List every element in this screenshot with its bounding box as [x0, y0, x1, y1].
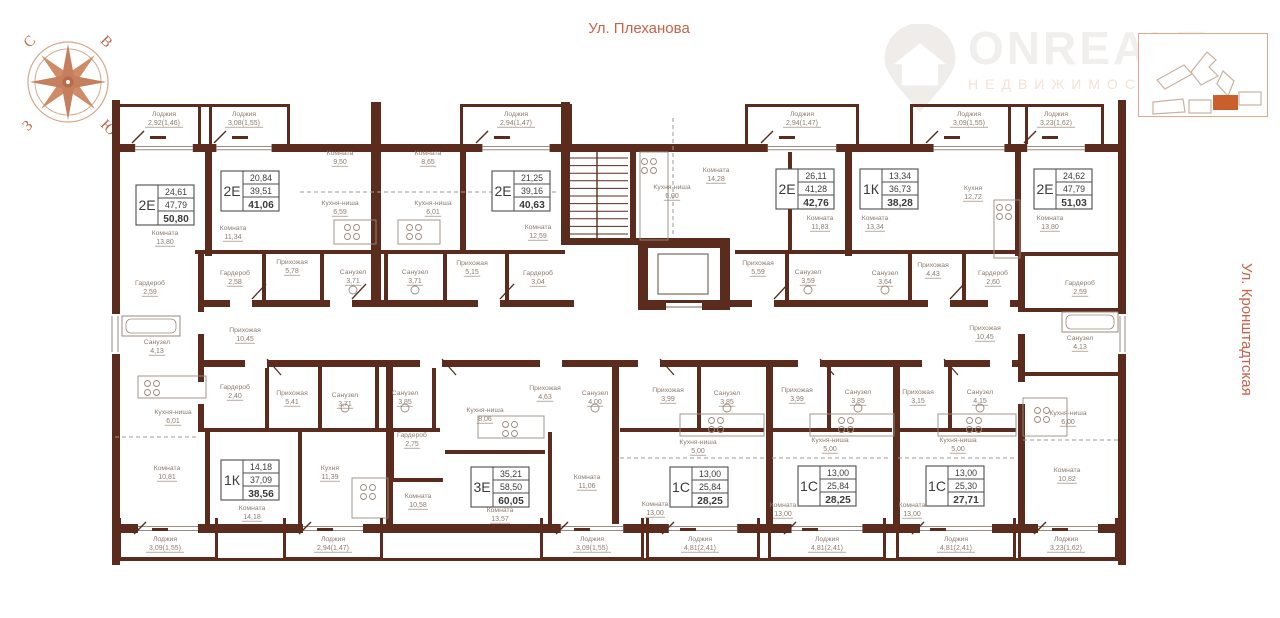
room-area: 3,71 — [346, 278, 360, 285]
room-name: Комната — [220, 225, 247, 232]
room-label: Санузел3,71 — [402, 269, 429, 285]
room-label: Лоджия4,81(2,41) — [681, 536, 719, 552]
room-label: Гардероб2,58 — [220, 269, 250, 286]
room-name: Санузел — [582, 390, 609, 397]
room-label: Лоджия3,09(1,55) — [573, 536, 611, 552]
room-area: 10,45 — [236, 336, 254, 343]
apartment-area: 36,73 — [889, 184, 911, 194]
floorplan-svg: Комната9,50Комната8,65Комната14,28Кухня-… — [0, 0, 1280, 618]
room-name: Комната — [899, 502, 926, 509]
apartment-type: 1К — [224, 472, 241, 488]
room-label: Санузел3,85 — [845, 389, 872, 405]
room-label: Прихожая3,99 — [652, 387, 684, 403]
room-name: Прихожая — [969, 325, 1001, 332]
room-label: Гардероб2,59 — [1065, 279, 1095, 296]
room-label: Прихожая5,78 — [276, 259, 308, 275]
room-label: Прихожая4,63 — [529, 385, 561, 401]
apartment-type: 1К — [863, 181, 880, 197]
room-name: Кухня-ниша — [939, 437, 976, 444]
apartment-info-box: 2Е20,8439,5141,06 — [221, 171, 279, 211]
room-label: Кухня-ниша8,06 — [466, 407, 503, 423]
apartment-area: 25,30 — [955, 481, 977, 491]
room-area: 8,06 — [478, 416, 492, 423]
room-name: Санузел — [845, 389, 872, 396]
room-label: Санузел3,59 — [795, 269, 822, 285]
room-label: Прихожая4,43 — [917, 262, 949, 278]
room-name: Комната — [1037, 215, 1064, 222]
room-area: 3,99 — [661, 396, 675, 403]
room-name: Прихожая — [229, 327, 261, 334]
apartment-area: 37,09 — [250, 475, 272, 485]
apartment-living-area: 21,25 — [521, 173, 543, 183]
apartment-info-box: 2Е24,6247,7951,03 — [1034, 169, 1092, 209]
room-name: Кухня-ниша — [653, 184, 690, 191]
room-area: 10,81 — [158, 474, 176, 481]
room-area: 3,85 — [720, 399, 734, 406]
room-name: Кухня-ниша — [154, 409, 191, 416]
room-area: 4,63 — [538, 394, 552, 401]
apartment-living-area: 20,84 — [250, 173, 272, 183]
room-area: 2,75 — [405, 441, 419, 448]
room-area: 5,00 — [823, 446, 837, 453]
room-name: Комната — [1054, 467, 1081, 474]
apartment-living-area: 24,61 — [165, 187, 187, 197]
apartment-info-box: 1К14,1837,0938,56 — [221, 460, 279, 500]
room-name: Санузел — [340, 269, 367, 276]
room-area: 3,85 — [851, 398, 865, 405]
room-name: Комната — [415, 150, 442, 157]
room-name: Прихожая — [652, 387, 684, 394]
room-label: Санузел3,64 — [872, 270, 899, 286]
room-name: Комната — [487, 507, 514, 514]
room-name: Лоджия — [1054, 536, 1078, 543]
room-label: Комната8,65 — [415, 150, 442, 166]
room-label: Комната13,00 — [899, 502, 926, 518]
apartment-living-area: 26,11 — [805, 171, 826, 181]
room-name: Прихожая — [276, 390, 308, 397]
room-name: Кухня-ниша — [321, 200, 358, 207]
room-label: Комната10,82 — [1054, 467, 1081, 483]
apartment-area: 47,79 — [1063, 184, 1085, 194]
room-name: Комната — [770, 502, 797, 509]
room-label: Санузел4,13 — [144, 339, 171, 355]
room-area: 10,82 — [1058, 476, 1076, 483]
apartment-type: 2Е — [1036, 181, 1053, 197]
room-area: 4,13 — [150, 348, 164, 355]
room-area: 3,71 — [408, 278, 422, 285]
room-label: Прихожая10,45 — [229, 327, 261, 343]
room-name: Комната — [405, 493, 432, 500]
room-area: 6,01 — [166, 418, 180, 425]
room-area: 3,04 — [531, 279, 545, 286]
stairs — [566, 152, 628, 238]
room-name: Прихожая — [917, 262, 949, 269]
apartment-area: 25,84 — [699, 482, 721, 492]
room-area: 4,15 — [973, 398, 987, 405]
room-name: Комната — [154, 465, 181, 472]
room-label: Лоджия3,09(1,55) — [146, 536, 184, 552]
room-label: Прихожая3,99 — [781, 387, 813, 403]
room-name: Лоджия — [815, 536, 839, 543]
apartment-living-area: 13,00 — [827, 468, 849, 478]
room-label: Кухня-ниша5,00 — [811, 437, 848, 453]
apartment-type: 2Е — [494, 183, 511, 199]
room-name: Комната — [152, 230, 179, 237]
room-area: 2,92(1,46) — [148, 120, 180, 127]
room-name: Прихожая — [456, 260, 488, 267]
room-label: Санузел3,85 — [392, 390, 419, 406]
room-label: Гардероб2,59 — [135, 279, 165, 296]
room-name: Комната — [239, 505, 266, 512]
room-label: Кухня12,72 — [963, 185, 983, 201]
room-label: Санузел3,71 — [332, 392, 359, 408]
room-label: Комната11,34 — [220, 225, 247, 241]
room-label: Лоджия4,81(2,41) — [808, 536, 846, 552]
apartment-type: 3Е — [473, 479, 490, 495]
room-area: 2,94(1,47) — [317, 545, 349, 552]
room-name: Комната — [574, 474, 601, 481]
room-area: 11,34 — [225, 234, 242, 241]
room-area: 2,60 — [986, 279, 1000, 286]
room-label: Лоджия2,94(1,47) — [497, 111, 535, 127]
room-label: Лоджия3,09(1,55) — [950, 111, 988, 127]
floorplan-page: ONREALT НЕДВИЖИМОСТЬ С В З Ю Ул. Плехан — [0, 0, 1280, 618]
room-area: 10,45 — [976, 334, 994, 341]
room-name: Прихожая — [902, 389, 934, 396]
room-label: Санузел4,15 — [967, 389, 994, 405]
room-label: Гардероб2,40 — [220, 383, 250, 400]
room-name: Комната — [525, 224, 552, 231]
room-name: Лоджия — [321, 536, 345, 543]
room-label: Кухня-ниша6,01 — [154, 409, 191, 425]
room-name: Лоджия — [232, 111, 256, 118]
room-area: 5,59 — [751, 269, 765, 276]
room-area: 4,81(2,41) — [684, 545, 716, 552]
room-name: Комната — [642, 501, 669, 508]
apartment-info-box: 1С13,0025,3027,71 — [926, 466, 984, 506]
apartment-info-box: 2Е26,1141,2842,76 — [776, 169, 834, 209]
apartment-type: 2Е — [223, 183, 240, 199]
room-label: Лоджия3,08(1,55) — [225, 111, 263, 127]
room-label: Лоджия2,94(1,47) — [314, 536, 352, 552]
room-area: 10,58 — [409, 502, 427, 509]
apartment-type: 2Е — [138, 197, 155, 213]
room-name: Прихожая — [781, 387, 813, 394]
room-area: 13,00 — [774, 511, 792, 518]
room-label: Кухня-ниша6,59 — [321, 200, 358, 216]
room-area: 5,00 — [951, 446, 965, 453]
room-name: Лоджия — [504, 111, 528, 118]
room-name: Гардероб — [220, 383, 250, 391]
room-label: Санузел3,85 — [714, 390, 741, 406]
room-label: Комната12,59 — [525, 224, 552, 240]
apartment-total-area: 28,25 — [697, 496, 723, 507]
room-area: 6,59 — [333, 209, 347, 216]
room-name: Лоджия — [957, 111, 981, 118]
room-area: 3,59 — [801, 278, 815, 285]
room-area: 4,81(2,41) — [811, 545, 843, 552]
apartment-area: 39,16 — [521, 186, 543, 196]
room-label: Лоджия3,23(1,62) — [1047, 536, 1085, 552]
room-area: 13,00 — [646, 510, 664, 517]
apartment-living-area: 13,00 — [955, 468, 977, 478]
room-name: Лоджия — [944, 536, 968, 543]
room-label: Санузел3,71 — [340, 269, 367, 285]
room-name: Кухня-ниша — [679, 439, 716, 446]
room-label: Комната10,81 — [154, 465, 181, 481]
apartment-info-box: 1С13,0025,8428,25 — [798, 466, 856, 506]
room-label: Комната13,80 — [152, 230, 179, 246]
apartment-total-area: 27,71 — [953, 495, 979, 506]
room-area: 2,40 — [228, 393, 242, 400]
room-area: 13,34 — [866, 224, 884, 231]
room-name: Кухня-ниша — [811, 437, 848, 444]
apartment-living-area: 35,21 — [500, 469, 522, 479]
room-label: Комната13,00 — [642, 501, 669, 517]
room-area: 11,83 — [812, 224, 829, 231]
room-name: Санузел — [144, 339, 171, 346]
room-name: Комната — [703, 167, 730, 174]
apartment-info-box: 1К13,3436,7338,28 — [860, 169, 918, 209]
apartment-area: 41,28 — [805, 184, 827, 194]
apartment-area: 25,84 — [827, 481, 849, 491]
apartment-total-area: 42,76 — [803, 198, 829, 209]
room-area: 2,94(1,47) — [786, 120, 818, 127]
room-label: Комната13,34 — [862, 215, 889, 231]
room-area: 13,80 — [156, 239, 174, 246]
room-name: Комната — [327, 150, 354, 157]
room-label: Комната10,58 — [405, 493, 432, 509]
apartment-total-area: 60,05 — [498, 496, 524, 507]
room-label: Лоджия2,94(1,47) — [783, 111, 821, 127]
room-name: Гардероб — [978, 269, 1008, 277]
room-area: 4,13 — [1073, 344, 1087, 351]
room-name: Комната — [862, 215, 889, 222]
room-label: Санузел4,00 — [582, 390, 609, 406]
room-name: Санузел — [402, 269, 429, 276]
room-name: Санузел — [332, 392, 359, 399]
room-label: Кухня11,39 — [320, 465, 340, 481]
room-name: Санузел — [392, 390, 419, 397]
apartment-living-area: 14,18 — [250, 462, 272, 472]
room-label: Прихожая5,41 — [276, 390, 308, 406]
room-name: Санузел — [967, 389, 994, 396]
room-area: 12,72 — [964, 194, 982, 201]
room-name: Прихожая — [742, 260, 774, 267]
room-name: Кухня-ниша — [466, 407, 503, 414]
room-name: Кухня-ниша — [1049, 410, 1086, 417]
room-area: 3,85 — [398, 399, 412, 406]
apartment-info-box: 1С13,0025,8428,25 — [670, 467, 728, 507]
room-label: Кухня-ниша6,00 — [1049, 410, 1086, 426]
room-label: Лоджия3,23(1,62) — [1037, 111, 1075, 127]
room-name: Санузел — [795, 269, 822, 276]
room-name: Кухня — [321, 465, 340, 472]
room-label: Комната11,06 — [574, 474, 601, 490]
apartment-type: 2Е — [778, 181, 795, 197]
room-name: Лоджия — [153, 536, 177, 543]
room-area: 5,15 — [465, 269, 479, 276]
room-area: 3,09(1,55) — [576, 545, 608, 552]
room-area: 2,59 — [1073, 289, 1087, 296]
room-area: 6,01 — [426, 209, 440, 216]
apartment-total-area: 28,25 — [825, 495, 851, 506]
room-name: Лоджия — [580, 536, 604, 543]
room-label: Комната13,00 — [770, 502, 797, 518]
room-name: Санузел — [1067, 335, 1094, 342]
room-label: Прихожая10,45 — [969, 325, 1001, 341]
room-area: 3,23(1,62) — [1050, 545, 1082, 552]
apartment-total-area: 38,28 — [887, 198, 913, 209]
room-area: 2,94(1,47) — [500, 120, 532, 127]
apartment-type: 1С — [672, 479, 690, 495]
room-area: 14,18 — [243, 514, 261, 521]
room-area: 3,15 — [911, 398, 925, 405]
room-label: Прихожая3,15 — [902, 389, 934, 405]
room-area: 13,80 — [1041, 224, 1059, 231]
room-label: Комната11,83 — [807, 215, 834, 231]
room-label: Гардероб2,60 — [978, 269, 1008, 286]
room-area: 6,00 — [665, 193, 679, 200]
apartment-type: 1С — [800, 478, 818, 494]
room-area: 13,00 — [903, 511, 921, 518]
room-label: Прихожая5,59 — [742, 260, 774, 276]
room-label: Комната14,18 — [239, 505, 266, 521]
room-name: Комната — [807, 215, 834, 222]
apartment-type: 1С — [928, 478, 946, 494]
room-name: Лоджия — [688, 536, 712, 543]
room-area: 13,57 — [491, 516, 509, 523]
room-label: Комната14,28 — [703, 167, 730, 183]
room-label: Комната13,80 — [1037, 215, 1064, 231]
room-name: Гардероб — [397, 431, 427, 439]
room-area: 3,09(1,55) — [953, 120, 985, 127]
room-area: 6,00 — [1061, 419, 1075, 426]
room-area: 9,50 — [333, 159, 347, 166]
room-label: Кухня-ниша5,00 — [679, 439, 716, 455]
apartment-total-area: 38,56 — [248, 489, 274, 500]
room-name: Лоджия — [152, 111, 176, 118]
room-area: 12,59 — [529, 233, 547, 240]
room-name: Гардероб — [135, 279, 165, 287]
room-area: 3,08(1,55) — [228, 120, 260, 127]
room-name: Санузел — [872, 270, 899, 277]
room-area: 5,41 — [285, 399, 299, 406]
apartment-info-box: 2Е24,6147,7950,80 — [136, 185, 194, 225]
room-area: 3,71 — [338, 401, 352, 408]
room-name: Гардероб — [220, 269, 250, 277]
apartment-info-box: 2Е21,2539,1640,63 — [492, 171, 550, 211]
apartment-area: 39,51 — [250, 186, 272, 196]
apartment-total-area: 40,63 — [519, 200, 545, 211]
room-area: 3,99 — [790, 396, 804, 403]
room-label: Комната9,50 — [327, 150, 354, 166]
apartment-total-area: 41,06 — [248, 200, 274, 211]
room-label: Гардероб2,75 — [397, 431, 427, 448]
apartment-living-area: 24,62 — [1063, 171, 1085, 181]
room-name: Прихожая — [529, 385, 561, 392]
room-name: Прихожая — [276, 259, 308, 266]
room-area: 2,59 — [143, 289, 157, 296]
room-label: Лоджия4,81(2,41) — [937, 536, 975, 552]
room-name: Лоджия — [1044, 111, 1068, 118]
room-name: Лоджия — [790, 111, 814, 118]
room-area: 3,64 — [878, 279, 892, 286]
apartment-area: 58,50 — [500, 482, 522, 492]
apartment-living-area: 13,34 — [889, 171, 911, 181]
room-label: Санузел4,13 — [1067, 335, 1094, 351]
room-area: 3,23(1,62) — [1040, 120, 1072, 127]
room-area: 5,78 — [285, 268, 299, 275]
room-area: 4,81(2,41) — [940, 545, 972, 552]
room-label: Комната13,57 — [487, 507, 514, 523]
room-area: 3,09(1,55) — [149, 545, 181, 552]
apartment-area: 47,79 — [165, 200, 187, 210]
room-label: Кухня-ниша5,00 — [939, 437, 976, 453]
room-area: 4,43 — [926, 271, 940, 278]
room-name: Санузел — [714, 390, 741, 397]
apartment-total-area: 50,80 — [163, 214, 189, 225]
room-label: Гардероб3,04 — [523, 269, 553, 286]
room-area: 14,28 — [707, 176, 725, 183]
room-name: Гардероб — [1065, 279, 1095, 287]
room-area: 11,06 — [579, 483, 596, 490]
room-label: Лоджия2,92(1,46) — [145, 111, 183, 127]
room-label: Прихожая5,15 — [456, 260, 488, 276]
apartment-living-area: 13,00 — [699, 469, 721, 479]
room-area: 5,00 — [691, 448, 705, 455]
room-area: 8,65 — [421, 159, 435, 166]
room-area: 2,58 — [228, 279, 242, 286]
apartment-total-area: 51,03 — [1061, 198, 1087, 209]
room-area: 11,39 — [322, 474, 339, 481]
room-label: Кухня-ниша6,00 — [653, 184, 690, 200]
room-name: Гардероб — [523, 269, 553, 277]
room-name: Кухня-ниша — [414, 200, 451, 207]
apartment-info-box: 3Е35,2158,5060,05 — [471, 467, 529, 507]
room-area: 4,00 — [588, 399, 602, 406]
room-label: Кухня-ниша6,01 — [414, 200, 451, 216]
room-name: Кухня — [964, 185, 983, 192]
